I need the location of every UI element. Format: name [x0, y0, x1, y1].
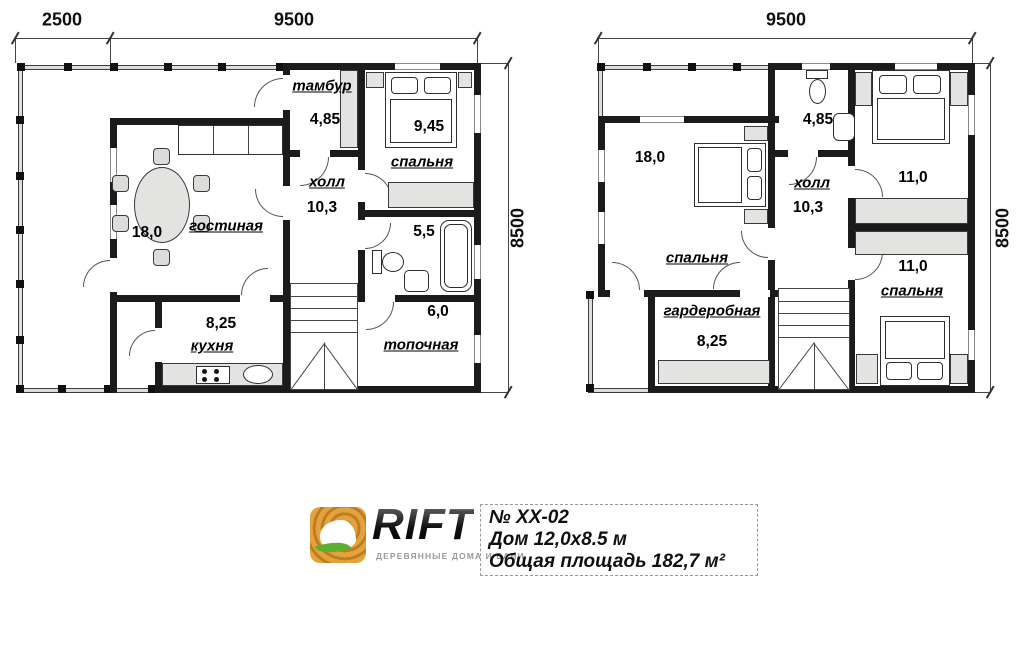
- f2-balcony2-left-wall: [588, 293, 593, 393]
- burner: [202, 369, 207, 374]
- f2-door-gap-wardrobe: [740, 290, 770, 297]
- blanket: [698, 147, 742, 203]
- f1-door-gap-living-hall: [283, 186, 290, 220]
- f1-dim-terrace: 2500: [42, 10, 82, 31]
- f2-dimline-top: [598, 38, 973, 39]
- sofa-line: [248, 126, 249, 154]
- f1-ext-r1: [481, 63, 509, 64]
- f1-stairs-center: [324, 343, 325, 389]
- f1-stairs-treads: [291, 285, 357, 343]
- f1-door-arc-boiler: [366, 302, 394, 330]
- chair: [112, 175, 129, 192]
- f1-window: [395, 63, 440, 70]
- f1-door-gap-tambur-hall: [300, 150, 330, 157]
- kitchen-sink: [243, 365, 273, 384]
- f2-window: [640, 116, 684, 123]
- f1-dim-height: 8500: [508, 208, 529, 248]
- project-number: № ХХ-02: [489, 507, 757, 529]
- f1-door-arc-bath: [365, 223, 391, 249]
- pillow: [879, 75, 907, 94]
- balcony-post: [688, 63, 696, 71]
- f2-area-bedtop: 11,0: [898, 169, 927, 187]
- f1-wall-hall-left: [283, 118, 290, 393]
- f2-wall-bed18-top: [598, 116, 779, 123]
- f2-door-arc-bedbottom: [855, 252, 883, 280]
- f2-label-bed18: спальня: [666, 250, 728, 267]
- f1-wall-bed-bottom: [358, 210, 481, 217]
- nightstand: [950, 354, 968, 384]
- blanket: [885, 321, 945, 359]
- f2-label-hall: холл: [794, 175, 830, 192]
- terrace-post: [16, 280, 24, 288]
- f2-door-gap-balcony: [610, 290, 644, 297]
- f2-door-gap-bed18-hall: [768, 228, 775, 260]
- f1-wall-living-top: [110, 118, 290, 125]
- terrace-post: [16, 116, 24, 124]
- f2-stairs-center: [814, 343, 815, 389]
- toilet-bowl: [382, 252, 404, 272]
- f2-window: [895, 63, 937, 70]
- terrace-post: [58, 385, 66, 393]
- f1-door-gap-living-terrace: [110, 258, 117, 292]
- toilet-tank: [372, 250, 382, 274]
- f1-ext-3: [477, 38, 478, 63]
- terrace-post: [17, 63, 25, 71]
- f2-stairs-treads: [779, 290, 849, 343]
- pillow: [424, 77, 451, 94]
- terrace-post: [16, 336, 24, 344]
- balcony-post: [586, 384, 594, 392]
- f1-label-living: гостиная: [189, 218, 263, 235]
- f1-dim-width: 9500: [274, 10, 314, 31]
- terrace-post: [164, 63, 172, 71]
- f1-terrace-wall-top: [18, 65, 285, 70]
- terrace-post: [16, 172, 24, 180]
- pillow: [747, 148, 762, 172]
- title-block: № ХХ-02 Дом 12,0х8.5 м Общая площадь 182…: [480, 504, 758, 576]
- chair: [193, 175, 210, 192]
- f2-door-gap-bath: [788, 150, 818, 157]
- f1-ext-2: [110, 38, 111, 63]
- f1-door-arc-living: [255, 189, 283, 217]
- f1-area-bedroom: 9,45: [414, 118, 444, 136]
- f1-door-gap-kitchen: [240, 295, 270, 302]
- blanket: [877, 98, 945, 140]
- f2-ext-1: [598, 38, 599, 63]
- f1-area-living: 18,0: [132, 224, 162, 242]
- nightstand: [458, 72, 472, 88]
- f2-area-hall: 10,3: [793, 199, 823, 217]
- f2-window: [802, 63, 830, 70]
- f2-label-bedbottom: спальня: [881, 283, 943, 300]
- f1-wall-top: [283, 63, 481, 70]
- terrace-post: [110, 63, 118, 71]
- house-size: Дом 12,0х8.5 м: [489, 529, 757, 551]
- f2-area-wardrobe: 8,25: [697, 333, 727, 351]
- f2-window: [598, 150, 605, 182]
- f1-label-tambur: тамбур: [292, 78, 351, 95]
- f2-window: [968, 95, 975, 135]
- f1-door-arc-kitchen-side: [129, 330, 155, 356]
- terrace-post: [218, 63, 226, 71]
- balcony-post: [597, 63, 605, 71]
- f2-window: [968, 330, 975, 360]
- balcony-post: [586, 291, 594, 299]
- bedroom-wardrobe: [388, 182, 474, 208]
- f1-area-kitchen: 8,25: [206, 315, 236, 333]
- f2-dim-width: 9500: [766, 10, 806, 31]
- f2-door-arc-bed18: [741, 231, 768, 258]
- f2-door-gap-bedbottom: [848, 248, 855, 280]
- f2-balcony-left-wall: [598, 65, 603, 118]
- balcony-post: [733, 63, 741, 71]
- f1-dimline-top: [15, 38, 478, 39]
- terrace-post: [16, 226, 24, 234]
- nightstand: [855, 72, 872, 106]
- f1-door-arc-entry: [254, 78, 283, 107]
- f1-door-arc-kitchen: [241, 268, 268, 295]
- terrace-post: [16, 385, 24, 393]
- f2-door-gap-bedtop: [848, 166, 855, 198]
- f2-window: [598, 212, 605, 244]
- total-area: Общая площадь 182,7 м²: [489, 551, 757, 573]
- pillow: [917, 362, 943, 380]
- f1-window: [474, 245, 481, 279]
- f2-ext-2: [972, 38, 973, 63]
- f2-area-bed18: 18,0: [635, 149, 665, 167]
- chair: [153, 148, 170, 165]
- burner: [214, 369, 219, 374]
- f2-door-arc-balcony: [612, 262, 640, 290]
- pillow: [913, 75, 941, 94]
- closet-band: [855, 231, 968, 255]
- f2-label-wardrobe: гардеробная: [664, 303, 761, 320]
- f1-window: [474, 95, 481, 133]
- nightstand: [744, 209, 768, 224]
- toilet-bowl: [809, 79, 826, 104]
- closet-band: [855, 198, 968, 224]
- f1-area-boiler: 6,0: [427, 303, 449, 321]
- sofa-line: [213, 126, 214, 154]
- f1-door-arc-living-terrace: [83, 260, 110, 287]
- logo-text: RIFT: [372, 500, 474, 550]
- chair: [153, 249, 170, 266]
- pillow: [747, 176, 762, 200]
- f2-door-arc-bedtop: [855, 169, 883, 197]
- nightstand: [950, 72, 968, 106]
- f2-dimline-right: [990, 63, 991, 393]
- f1-label-kitchen: кухня: [191, 338, 234, 355]
- pillow: [886, 362, 912, 380]
- f1-label-bedroom: спальня: [391, 154, 453, 171]
- nightstand: [856, 354, 878, 384]
- f1-door-gap-bedroom: [358, 170, 365, 202]
- f1-ext-r2: [481, 392, 509, 393]
- f1-area-hall: 10,3: [307, 199, 337, 217]
- f1-ext-1: [15, 38, 16, 63]
- toilet-tank: [806, 70, 828, 79]
- terrace-post: [64, 63, 72, 71]
- f2-wall-wardrobe-left: [648, 293, 655, 393]
- f2-wall-closet-mid: [848, 224, 975, 231]
- f1-label-boiler: топочная: [384, 337, 459, 354]
- f2-balcony-top-wall: [598, 65, 772, 70]
- pillow: [391, 77, 418, 94]
- sofa: [178, 125, 283, 155]
- burner: [214, 377, 219, 382]
- f1-door-gap-kitchen-side: [155, 328, 162, 362]
- f1-door-gap-boiler: [365, 295, 395, 302]
- f1-area-tambur: 4,85: [310, 111, 340, 129]
- f2-dim-height: 8500: [993, 208, 1014, 248]
- f1-terrace-wall-bottom: [18, 388, 158, 393]
- burner: [202, 377, 207, 382]
- nightstand: [366, 72, 384, 88]
- sink: [833, 113, 855, 141]
- f1-door-gap-bath: [358, 220, 365, 250]
- nightstand: [744, 126, 768, 141]
- f1-window: [474, 335, 481, 363]
- wardrobe-unit: [658, 360, 770, 384]
- stove: [196, 366, 230, 384]
- chair: [112, 215, 129, 232]
- f2-area-bedbottom: 11,0: [898, 258, 927, 276]
- balcony-post: [643, 63, 651, 71]
- f1-door-gap-entry: [283, 75, 290, 110]
- f2-area-bath: 4,85: [803, 111, 833, 129]
- f2-wall-left: [598, 116, 605, 293]
- f1-area-bath: 5,5: [413, 223, 435, 241]
- bathtub-inner: [444, 224, 468, 288]
- sink: [404, 270, 429, 292]
- f1-label-hall: холл: [309, 174, 345, 191]
